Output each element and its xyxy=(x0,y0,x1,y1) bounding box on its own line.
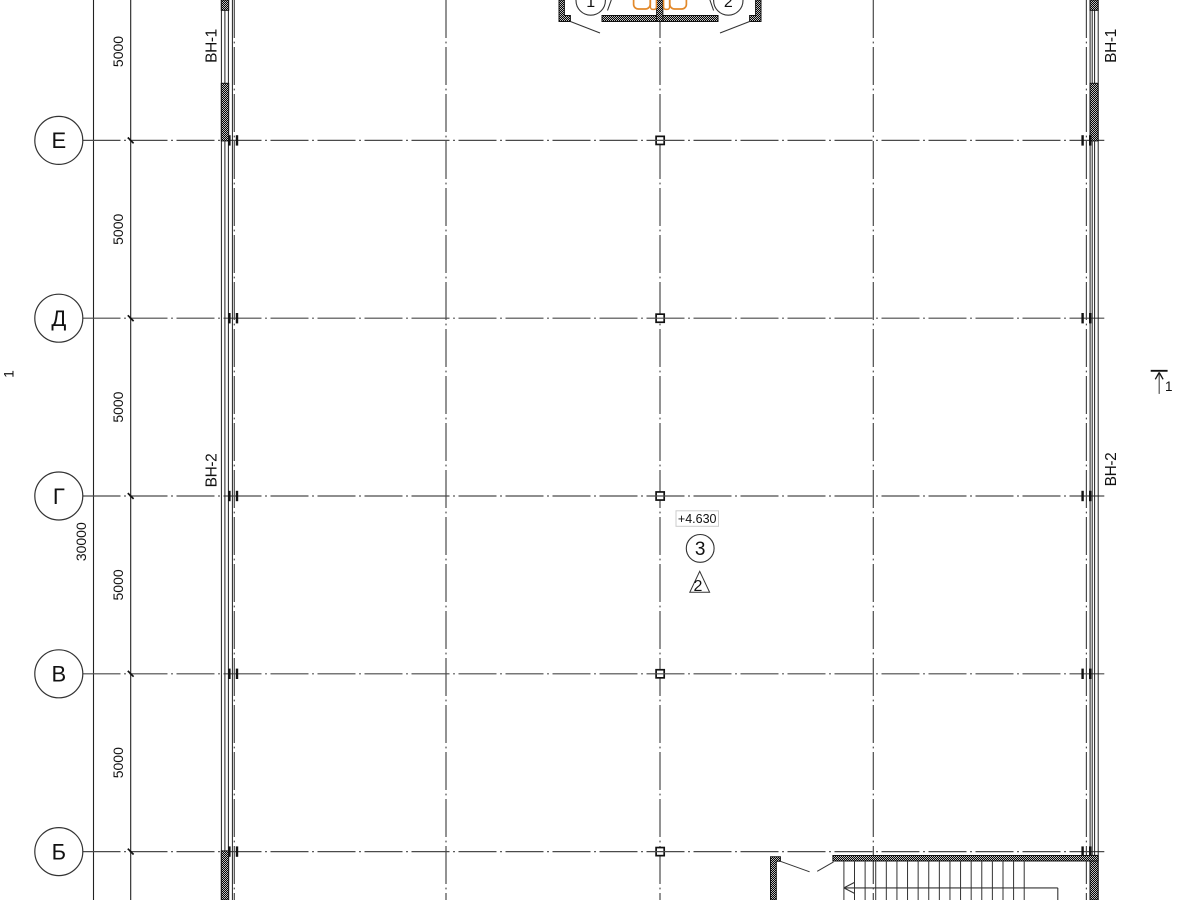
svg-text:5000: 5000 xyxy=(110,747,126,778)
svg-text:Б: Б xyxy=(52,839,66,864)
svg-text:3: 3 xyxy=(695,539,706,560)
svg-text:2: 2 xyxy=(694,578,703,595)
svg-text:ВН-2: ВН-2 xyxy=(203,454,220,488)
svg-text:ВН-2: ВН-2 xyxy=(1103,453,1120,487)
svg-text:1: 1 xyxy=(1,370,16,378)
svg-text:В: В xyxy=(51,662,66,687)
svg-text:5000: 5000 xyxy=(110,36,126,67)
svg-text:5000: 5000 xyxy=(110,391,126,422)
svg-text:5000: 5000 xyxy=(110,214,126,245)
svg-text:Е: Е xyxy=(51,128,66,153)
svg-text:ВН-1: ВН-1 xyxy=(1103,29,1120,63)
svg-text:ВН-1: ВН-1 xyxy=(203,29,220,63)
svg-text:30000: 30000 xyxy=(73,522,89,561)
svg-text:5000: 5000 xyxy=(110,569,126,600)
svg-text:1: 1 xyxy=(586,0,595,11)
svg-text:1: 1 xyxy=(1165,379,1173,394)
svg-text:2: 2 xyxy=(724,0,733,11)
svg-text:Д: Д xyxy=(51,306,66,331)
svg-text:+4.630: +4.630 xyxy=(678,512,717,526)
svg-text:Г: Г xyxy=(53,484,65,509)
